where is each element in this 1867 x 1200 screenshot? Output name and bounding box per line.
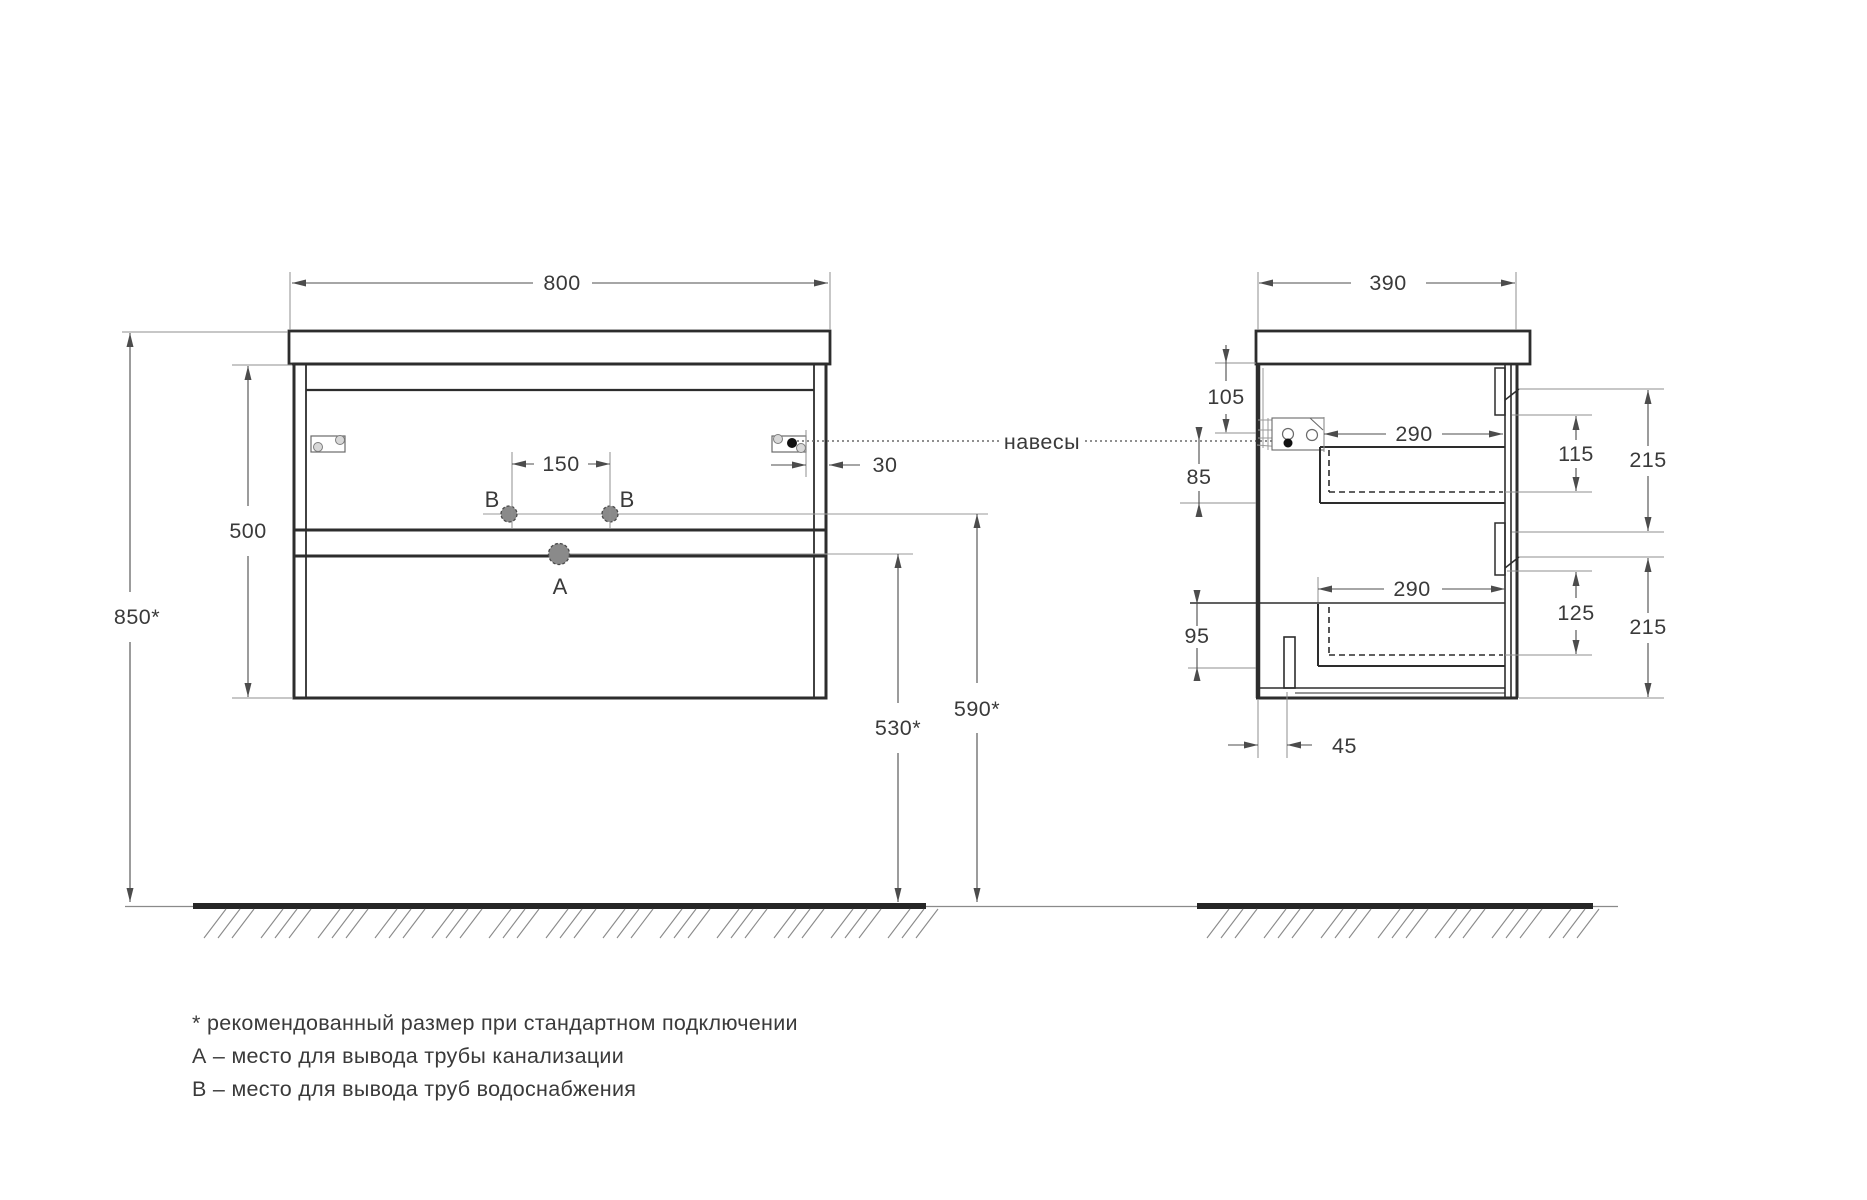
point-b-right-label: B [620, 487, 635, 512]
dim-supply-height: 590* [954, 514, 1000, 902]
dim-drawer1-depth-label: 290 [1395, 422, 1432, 446]
dim-drawer2-depth: 290 [1318, 577, 1505, 602]
dim-bottom-zone-label: 95 [1185, 624, 1210, 648]
side-drawer-top [1320, 447, 1505, 503]
hanger-point-dot [787, 438, 797, 448]
ground-hatching-side [1207, 909, 1599, 938]
dim-top-to-hangers: 105 [1207, 345, 1256, 433]
dim-install-height: 850* [114, 332, 288, 902]
floor-bar-front [193, 903, 926, 909]
side-front-panel-brackets [1495, 368, 1519, 575]
dim-front-width-label: 800 [543, 271, 580, 295]
dim-front-width: 800 [290, 271, 830, 330]
dim-front1-height-label: 215 [1629, 448, 1666, 472]
point-b-left-label: B [485, 487, 500, 512]
hangers-label: навесы [1004, 430, 1080, 454]
dim-hanger-inset-label: 30 [873, 453, 898, 477]
ground [125, 903, 1618, 938]
floor-bar-side [1197, 903, 1593, 909]
dim-drawer1-inner-label: 115 [1558, 442, 1594, 466]
point-a-label: A [553, 574, 568, 599]
front-view: B B A 800 150 30 [114, 271, 1000, 902]
notes-legend: * рекомендованный размер при стандартном… [192, 1011, 798, 1101]
point-b-left [501, 506, 517, 522]
dim-front-height-label: 500 [229, 519, 266, 543]
connection-points: B B A [483, 487, 988, 599]
side-countertop [1256, 331, 1530, 364]
point-a [549, 544, 570, 565]
dim-bottom-inset: 45 [1228, 692, 1357, 758]
dim-depth: 390 [1258, 271, 1516, 330]
dim-holes-gap-label: 150 [542, 452, 579, 476]
note-point-a: А – место для вывода трубы канализации [192, 1044, 624, 1068]
dim-drawer2-inner-label: 125 [1557, 601, 1594, 625]
vanity-installation-drawing: B B A 800 150 30 [0, 0, 1867, 1200]
note-recommended-size: * рекомендованный размер при стандартном… [192, 1011, 798, 1035]
front-countertop [289, 331, 830, 364]
front-hanger-plate-right [772, 435, 806, 453]
dim-drain-height-label: 530* [875, 716, 921, 740]
dim-supply-height-label: 590* [954, 697, 1000, 721]
dim-front-height: 500 [229, 365, 292, 698]
side-view: 390 105 85 95 290 [1180, 271, 1667, 758]
side-drawer-bottom [1190, 603, 1505, 666]
dim-install-height-label: 850* [114, 605, 160, 629]
front-hanger-plate-left [311, 436, 345, 453]
dim-depth-label: 390 [1369, 271, 1406, 295]
side-bottom-bracket [1284, 637, 1295, 688]
dim-holes-gap: 150 [512, 452, 610, 528]
dim-front2-height-label: 215 [1629, 615, 1666, 639]
dim-hangers-to-drawer-label: 85 [1187, 465, 1212, 489]
dim-drawer2-depth-label: 290 [1393, 577, 1430, 601]
side-hanger-dot [1284, 439, 1293, 448]
note-point-b: В – место для вывода труб водоснабжения [192, 1077, 636, 1101]
ground-hatching-front [204, 909, 938, 938]
technical-drawing-page: B B A 800 150 30 [0, 0, 1867, 1200]
side-hanger-assembly [1257, 368, 1324, 450]
dim-top-to-hangers-label: 105 [1207, 385, 1244, 409]
hangers-callout: навесы [797, 430, 1288, 454]
dim-drain-height: 530* [875, 554, 921, 902]
dim-front2-height: 215 [1519, 557, 1667, 698]
dim-bottom-inset-label: 45 [1332, 734, 1357, 758]
